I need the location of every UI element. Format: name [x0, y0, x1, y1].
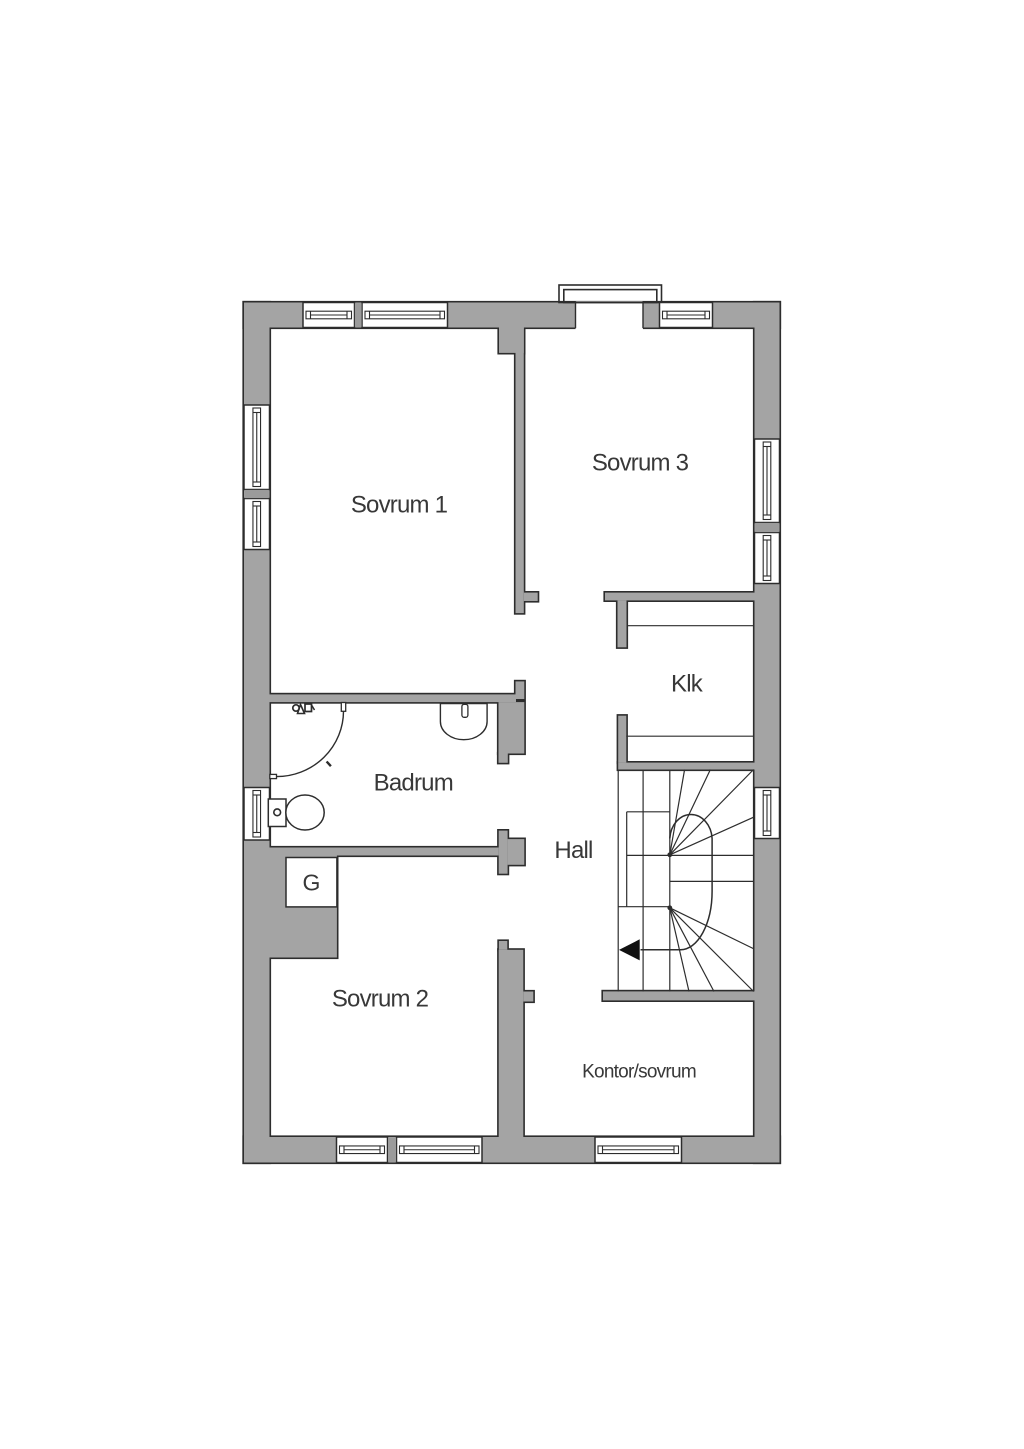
svg-text:Sovrum 3: Sovrum 3 — [592, 450, 689, 477]
svg-text:G: G — [303, 870, 321, 896]
svg-text:Sovrum 2: Sovrum 2 — [332, 986, 429, 1013]
svg-text:Kontor/sovrum: Kontor/sovrum — [582, 1061, 696, 1082]
svg-text:Sovrum 1: Sovrum 1 — [351, 492, 448, 519]
svg-text:Badrum: Badrum — [374, 769, 453, 796]
svg-text:Klk: Klk — [671, 671, 704, 698]
svg-text:Hall: Hall — [554, 837, 592, 864]
